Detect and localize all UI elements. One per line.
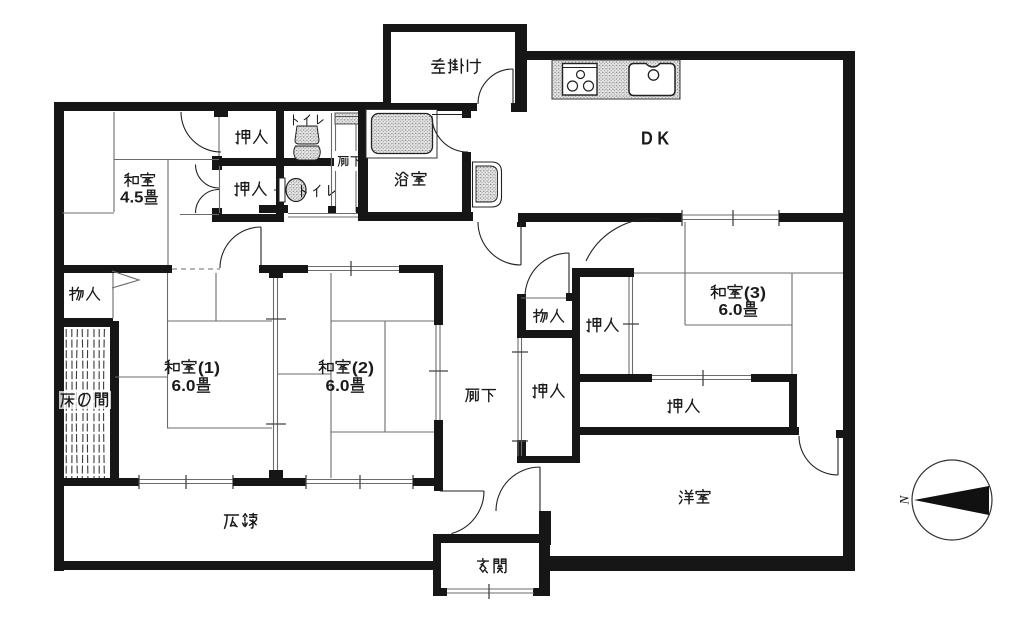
svg-text:6.0: 6.0 — [326, 378, 350, 395]
svg-text:(3): (3) — [744, 285, 766, 302]
svg-text:(1): (1) — [198, 360, 220, 377]
svg-text:4.5: 4.5 — [120, 190, 144, 207]
svg-text:6.0: 6.0 — [719, 302, 743, 319]
svg-text:6.0: 6.0 — [172, 378, 196, 395]
svg-text:D K: D K — [641, 129, 669, 149]
svg-text:(2): (2) — [352, 360, 374, 377]
svg-text:N: N — [897, 494, 912, 505]
